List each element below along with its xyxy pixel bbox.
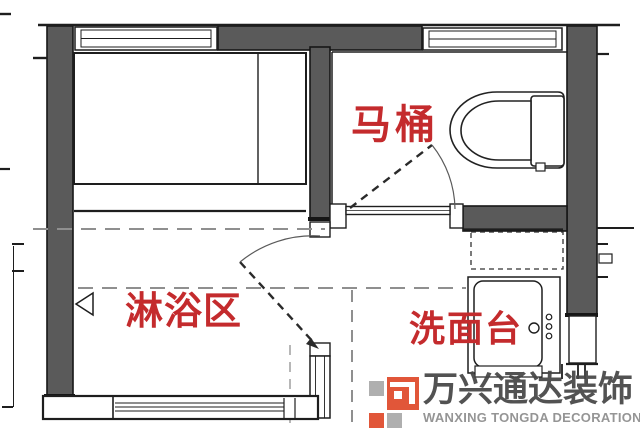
wall-right-column [567, 26, 597, 316]
shower-drain-icon [76, 293, 93, 315]
door-swing-dashed-leaf [240, 262, 315, 344]
room-outline [74, 53, 306, 184]
watermark: 万兴通达装饰 WANXING TONGDA DECORATION [363, 372, 640, 428]
watermark-text: 万兴通达装饰 WANXING TONGDA DECORATION [423, 372, 640, 425]
window-top-right [423, 28, 562, 50]
bottom-wall-window [43, 396, 318, 419]
floorplan-image: 马桶 淋浴区 洗面台 万兴通达装饰 WANXING TONGDA DECORAT… [0, 0, 640, 432]
knob-icon [546, 314, 552, 320]
logo-glyph [409, 382, 415, 404]
toilet-label: 马桶 [351, 105, 439, 145]
mirror-cabinet-dashed [471, 232, 563, 269]
window-top-left [75, 27, 217, 50]
wall-toilet-bottom [463, 206, 567, 231]
door-jamb [330, 204, 346, 228]
toilet-bowl [461, 101, 531, 160]
logo-square-red [369, 413, 384, 428]
logo-square-gray [387, 413, 402, 428]
wanxing-logo-icon [363, 372, 421, 428]
logo-square-gray [369, 381, 384, 396]
door-swing-arc [432, 145, 455, 209]
shower-area [76, 293, 93, 315]
brand-name-cn: 万兴通达装饰 [423, 372, 640, 409]
toilet-fixture [450, 92, 564, 171]
pipe-symbol [599, 254, 612, 263]
room-upper-left [74, 53, 306, 211]
faucet-icon [529, 323, 539, 333]
shower-door [240, 222, 330, 418]
door-jamb [310, 222, 330, 237]
wall-lower-section [569, 316, 596, 363]
wash-basin-label: 洗面台 [409, 311, 523, 347]
wall-cap [308, 217, 332, 221]
knob-icon [546, 324, 552, 330]
logo-glyph [394, 391, 402, 399]
door-jamb [450, 204, 463, 228]
knob-icon [546, 333, 552, 339]
wall-partition [310, 47, 330, 220]
toilet-flush-button [536, 163, 545, 171]
brand-name-en: WANXING TONGDA DECORATION [423, 410, 640, 425]
floorplan-drawing [0, 0, 640, 432]
wall-left [47, 26, 73, 397]
shower-area-label: 淋浴区 [125, 293, 242, 331]
logo-square-red-main [387, 377, 419, 410]
door-swing-arc [240, 236, 320, 262]
door-swing-dashed-leaf [350, 145, 432, 208]
toilet-door [330, 145, 463, 228]
toilet-tank [531, 96, 564, 166]
